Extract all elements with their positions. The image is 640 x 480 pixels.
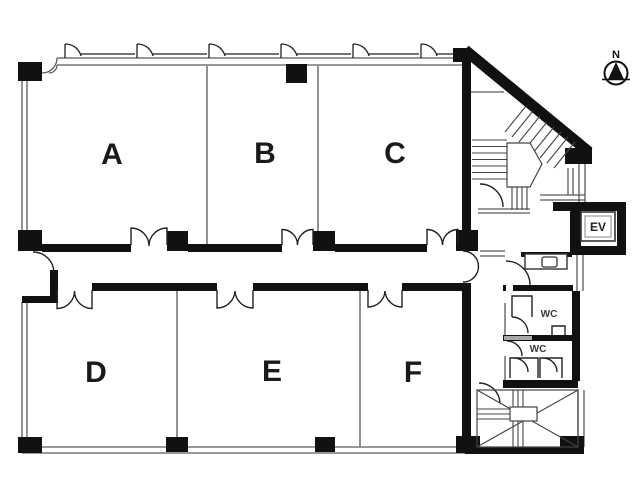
wc-lower-label: WC [530,344,547,355]
room-f-label: F [404,356,422,389]
north-label: N [612,49,620,61]
room-d-label: D [85,356,107,389]
elevator: EV [581,212,615,241]
wc-upper-label: WC [541,309,558,320]
utility-room [525,254,567,269]
sink-basin [542,257,557,267]
room-a-label: A [101,138,123,171]
stair-lower-landing [510,407,537,421]
room-e-label: E [262,355,282,388]
wc-mid-wall-gray [504,336,532,340]
room-c-label: C [384,137,406,170]
elevator-label: EV [590,220,606,234]
floor-plan-canvas: EV WC WC N A B C D E F [0,0,640,480]
room-b-label: B [254,137,276,170]
